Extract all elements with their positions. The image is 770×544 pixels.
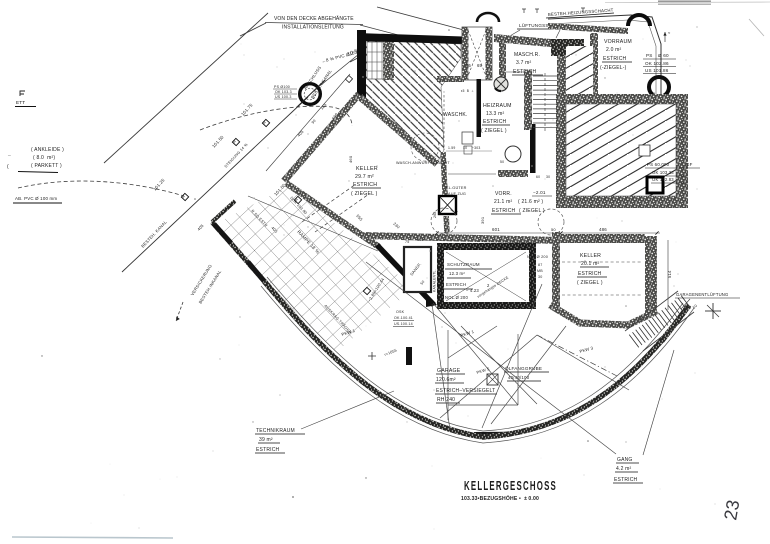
svg-text:HEIZRAUM: HEIZRAUM <box>483 103 512 109</box>
svg-text:PS: PS <box>646 53 653 58</box>
svg-text:( 8.0 m²): ( 8.0 m²) <box>33 155 55 161</box>
svg-text:GARAGE: GARAGE <box>437 368 461 374</box>
svg-text:103.33•BEZUGSHÖHE • ± 0.00: 103.33•BEZUGSHÖHE • ± 0.00 <box>461 495 539 502</box>
svg-text:10: 10 <box>463 146 467 150</box>
svg-text:−2.01: −2.01 <box>533 190 546 195</box>
svg-text:12.3 m²: 12.3 m² <box>449 271 465 276</box>
svg-text:KELLER: KELLER <box>356 166 378 172</box>
svg-text:¯: ¯ <box>7 155 11 162</box>
svg-text:ESTRICH: ESTRICH <box>492 208 516 214</box>
svg-text:WASCHK.: WASCHK. <box>443 112 468 118</box>
svg-text:MASCH.R.: MASCH.R. <box>514 52 540 58</box>
svg-text:VORRAUM: VORRAUM <box>604 39 632 45</box>
svg-text:OK 103.33: OK 103.33 <box>652 170 674 175</box>
svg-text:50: 50 <box>551 227 556 232</box>
svg-text:29.7 m²: 29.7 m² <box>355 174 374 180</box>
svg-text:21.1 m²: 21.1 m² <box>494 199 512 205</box>
svg-text:( ZIEGEL ): ( ZIEGEL ) <box>481 128 507 134</box>
svg-text:OK 102.86: OK 102.86 <box>645 61 669 66</box>
svg-text:30: 30 <box>538 275 542 279</box>
svg-text:AB. PVC Ø 100 mm: AB. PVC Ø 100 mm <box>15 196 57 201</box>
svg-text:OK 103.3: OK 103.3 <box>275 90 292 94</box>
svg-text:ESTRICH: ESTRICH <box>578 271 602 277</box>
svg-text:13.3 m²: 13.3 m² <box>486 111 504 117</box>
svg-text:2.0 m²: 2.0 m² <box>606 47 622 53</box>
svg-text:( ZIEGEL ): ( ZIEGEL ) <box>351 191 378 197</box>
svg-text:OSK: OSK <box>396 310 405 314</box>
svg-text:TECHNIKRAUM: TECHNIKRAUM <box>256 428 295 434</box>
svg-text:US.100.14: US.100.14 <box>394 322 413 326</box>
svg-text:NOL.Ø 200: NOL.Ø 200 <box>527 255 548 259</box>
svg-text:PS 60.000: PS 60.000 <box>647 162 670 167</box>
svg-text:ε5 B ⊥: ε5 B ⊥ <box>461 89 474 93</box>
svg-text:AUF ZUG: AUF ZUG <box>448 192 466 196</box>
svg-text:GARAGENENTLÜFTUNG: GARAGENENTLÜFTUNG <box>676 292 729 297</box>
svg-text:30: 30 <box>546 175 550 179</box>
svg-text:VON DEN DECKE ABGEHÄNGTE: VON DEN DECKE ABGEHÄNGTE <box>274 15 354 22</box>
svg-text:VORR.: VORR. <box>495 191 512 197</box>
svg-text:US 101.86: US 101.86 <box>645 68 669 73</box>
svg-text:(-ZIEGEL-): (-ZIEGEL-) <box>600 65 627 71</box>
svg-text:ÖLFANGGRUBE: ÖLFANGGRUBE <box>505 365 542 371</box>
svg-text:KL.GÜTER: KL.GÜTER <box>446 186 467 190</box>
svg-text:OK 102.83: OK 102.83 <box>652 177 674 182</box>
svg-text:KELLER: KELLER <box>580 253 601 259</box>
svg-text:87: 87 <box>538 263 542 267</box>
svg-text:OK.100.41: OK.100.41 <box>394 316 413 320</box>
svg-text:1.59: 1.59 <box>448 146 455 150</box>
svg-text:INSTALLATIONSLEITUNG: INSTALLATIONSLEITUNG <box>282 25 344 31</box>
svg-text:KANALENTL.: KANALENTL. <box>433 269 437 292</box>
svg-text:( ZIEGEL ): ( ZIEGEL ) <box>519 208 545 214</box>
svg-text:391: 391 <box>480 216 485 224</box>
svg-text:− 4.23: − 4.23 <box>466 288 479 293</box>
svg-text:ESTRICH: ESTRICH <box>603 56 627 62</box>
svg-text:ETT: ETT <box>16 100 25 105</box>
svg-text:GANG: GANG <box>617 457 633 463</box>
svg-text:MB: MB <box>537 269 543 273</box>
svg-text:60: 60 <box>536 175 540 179</box>
svg-text:50: 50 <box>500 160 504 164</box>
svg-text:( ZIEGEL ): ( ZIEGEL ) <box>577 280 603 286</box>
svg-text:GF: GF <box>686 162 693 167</box>
svg-text:514: 514 <box>667 270 672 278</box>
svg-text:Ø 60: Ø 60 <box>658 53 669 58</box>
svg-text:( PARKETT ): ( PARKETT ) <box>31 163 62 169</box>
svg-text:75: 75 <box>405 240 409 244</box>
svg-text:ESTRICH: ESTRICH <box>614 477 638 483</box>
svg-text:4.2 m²: 4.2 m² <box>616 466 632 472</box>
svg-text:601: 601 <box>492 227 500 232</box>
svg-text:ESTRICH: ESTRICH <box>446 282 466 287</box>
svg-text:US 100.3: US 100.3 <box>275 95 292 99</box>
svg-text:268: 268 <box>433 211 437 218</box>
svg-text:65: 65 <box>477 63 483 68</box>
svg-text:( 21.6 m² ): ( 21.6 m² ) <box>518 199 543 205</box>
svg-text:WASCH.ANWURFSCHACHT: WASCH.ANWURFSCHACHT <box>396 161 450 165</box>
svg-text:KELLERGESCHOSS: KELLERGESCHOSS <box>464 478 557 493</box>
svg-text:ESTRICH: ESTRICH <box>483 119 507 125</box>
svg-text:446: 446 <box>594 236 602 241</box>
svg-text:ESTRICH: ESTRICH <box>256 447 280 453</box>
svg-text:(: ( <box>7 164 9 170</box>
svg-text:100: 100 <box>417 238 424 242</box>
svg-text:460: 460 <box>348 155 353 163</box>
svg-text:39 m²: 39 m² <box>259 437 273 443</box>
svg-text:ESTRICH: ESTRICH <box>353 182 377 188</box>
svg-text:23: 23 <box>720 498 743 522</box>
svg-text:3.7 m²: 3.7 m² <box>516 60 532 66</box>
svg-text:PS Ø100: PS Ø100 <box>274 85 290 89</box>
svg-text:65: 65 <box>466 63 472 68</box>
svg-text:120.6m²: 120.6m² <box>436 377 456 383</box>
svg-text:−303: −303 <box>472 146 480 150</box>
svg-text:486: 486 <box>599 227 607 232</box>
svg-text:( ANKLEIDE ): ( ANKLEIDE ) <box>31 147 64 153</box>
